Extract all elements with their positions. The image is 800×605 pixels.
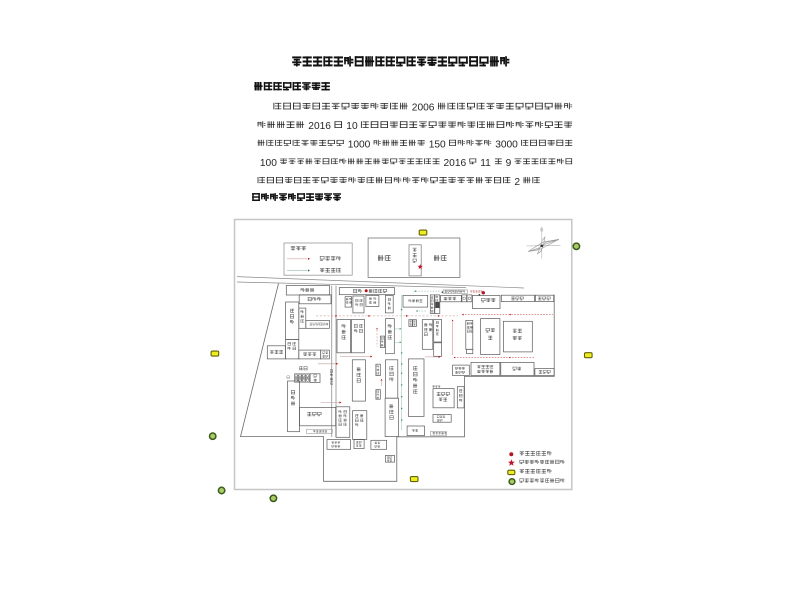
- svg-text:2016: 2016: [444, 158, 467, 169]
- svg-text:150: 150: [429, 140, 446, 151]
- svg-text:11: 11: [480, 158, 491, 169]
- svg-text:2: 2: [514, 177, 520, 188]
- svg-text:2006: 2006: [412, 103, 435, 114]
- svg-text:9: 9: [506, 158, 512, 169]
- svg-text:2016: 2016: [308, 121, 331, 132]
- svg-text:100: 100: [260, 158, 277, 169]
- svg-text:3000: 3000: [495, 140, 518, 151]
- svg-text:1000: 1000: [348, 140, 371, 151]
- svg-text:10: 10: [346, 121, 358, 132]
